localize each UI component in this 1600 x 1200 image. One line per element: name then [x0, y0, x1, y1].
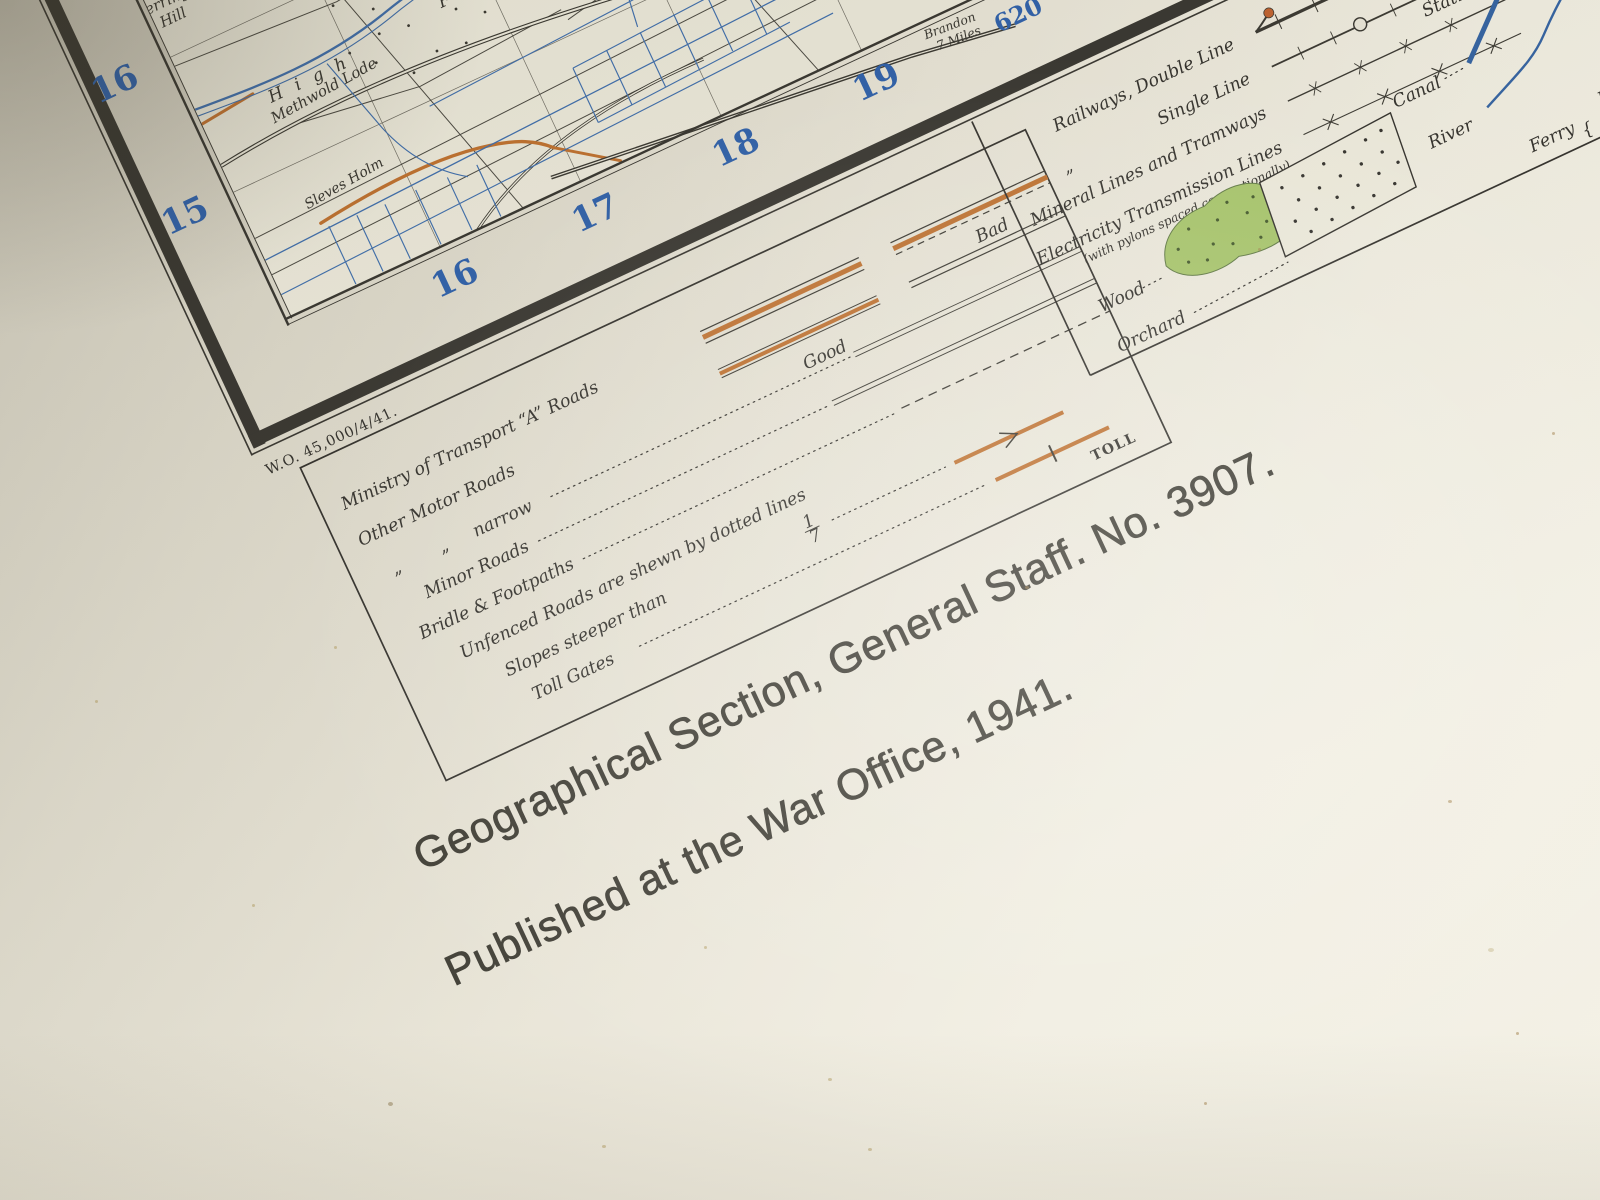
photograph-of-map-sheet: Herring Hill High Fen Methwold Lode Slev… [0, 0, 1600, 1200]
legend-good: Good [800, 337, 850, 375]
legend-ferry-foot: Foot [1594, 75, 1600, 111]
station-circle-icon [1352, 16, 1369, 33]
ditto-mark: „ [1059, 156, 1076, 178]
legend-other-motor-roads: Other Motor Roads [355, 460, 519, 550]
legend-wood: Wood [1095, 278, 1148, 317]
ditto-mark: „ [388, 558, 405, 580]
grid-number-18: 18 [706, 120, 766, 176]
paper-speck [1488, 948, 1494, 952]
paper-speck [1204, 1102, 1207, 1105]
legend-canal: Canal [1390, 73, 1445, 113]
grid-number-16: 16 [425, 251, 485, 307]
print-code: W.O. 45,000/4/41. [263, 403, 400, 478]
fraction-denominator: 7 [806, 525, 825, 548]
one-seventh-fraction: 1 7 [797, 510, 827, 549]
motor-road-good-symbol-icon [718, 296, 880, 378]
paper-speck [1516, 1032, 1519, 1035]
legend-station: Station (closed [1419, 0, 1548, 22]
slope-arrow-symbol-icon [951, 405, 1067, 470]
canal-symbol-icon [1375, 0, 1600, 63]
a-road-bad-symbol-icon [891, 171, 1051, 255]
station-dot-icon [1262, 6, 1275, 19]
publication-imprint: Geographical Section, General Staff. No.… [388, 438, 1332, 996]
grid-number-17: 17 [565, 185, 625, 241]
railways-legend: Railways, Double Line Viaduct „ Single L… [944, 0, 1600, 375]
grid-number-620: 620 [989, 0, 1047, 38]
map-sheet-print: Herring Hill High Fen Methwold Lode Slev… [0, 0, 1600, 1200]
ferry-brace: { [1578, 119, 1597, 142]
legend-river: River [1424, 115, 1478, 154]
paper-speck [868, 1148, 872, 1151]
minor-road-symbol-icon [832, 278, 1097, 405]
legend-narrow: narrow [470, 496, 536, 541]
map-sheet: Herring Hill High Fen Methwold Lode Slev… [0, 0, 1600, 1200]
legend-orchard: Orchard [1114, 308, 1189, 357]
ditto-mark: „ [435, 536, 452, 558]
